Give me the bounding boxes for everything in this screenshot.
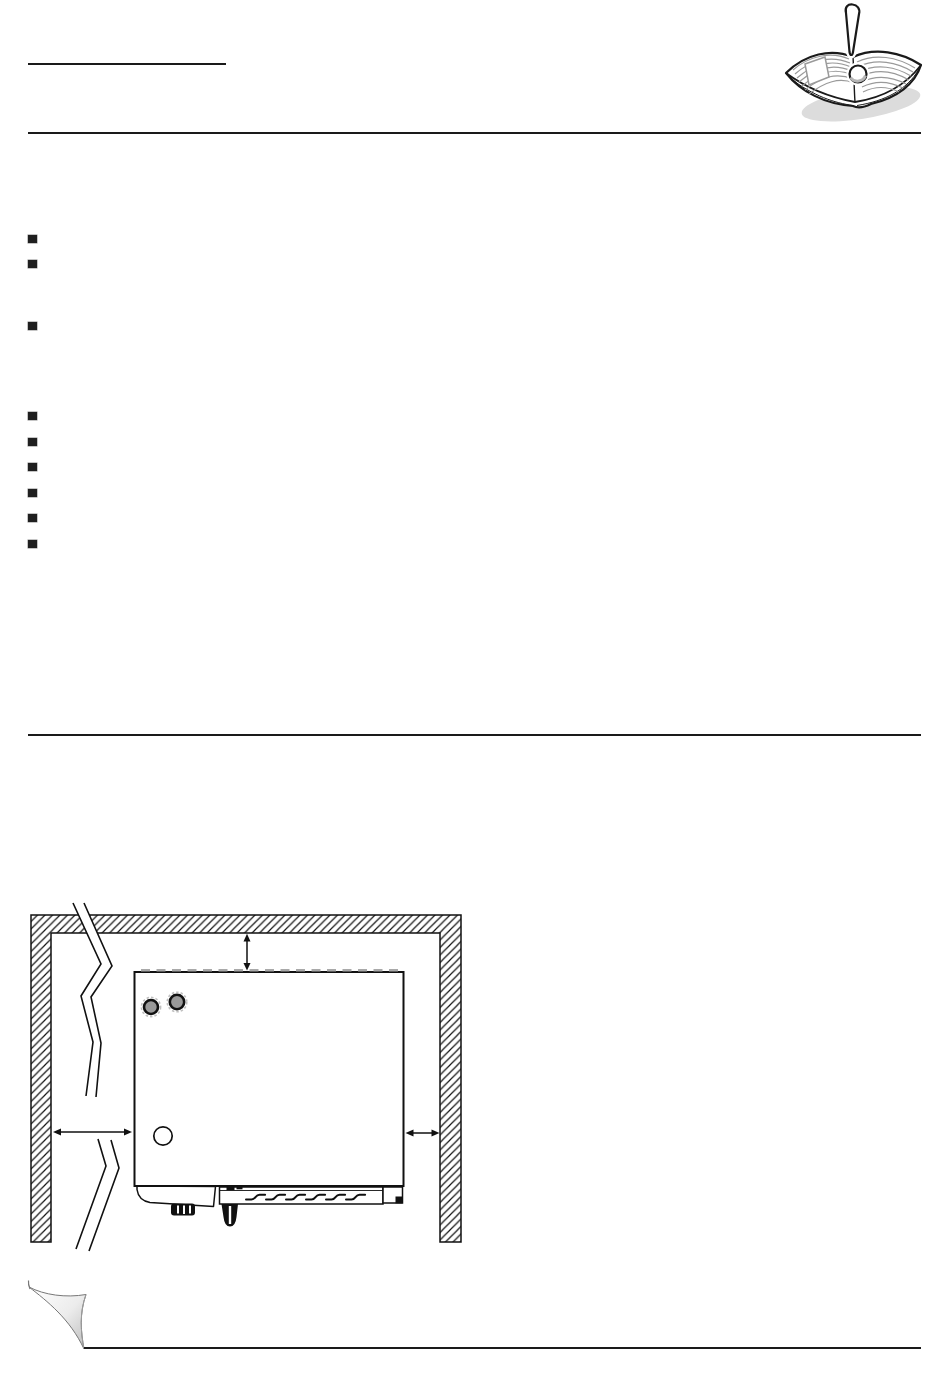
page-curl-icon [24, 1278, 90, 1354]
title-underline [28, 63, 226, 65]
knob-right [170, 995, 184, 1009]
document-page [0, 0, 950, 1378]
installation-diagram [25, 898, 470, 1260]
square-bullet [28, 438, 37, 446]
open-book-exclamation-icon [773, 2, 925, 130]
square-bullet [28, 463, 37, 471]
page-curl [24, 1278, 90, 1354]
base-kick-panel [137, 1186, 216, 1207]
header-rule [28, 132, 921, 134]
top-clearance-arrow [244, 934, 251, 971]
section-rule [28, 734, 921, 736]
square-bullet [28, 540, 37, 548]
footer-rule [84, 1347, 921, 1349]
square-bullet [28, 489, 37, 497]
square-bullet [28, 322, 37, 330]
left-clearance-arrow [53, 1129, 132, 1136]
square-bullet [28, 514, 37, 522]
manual-note-icon [773, 2, 925, 130]
curl-body [29, 1287, 86, 1349]
base-latch-mark [237, 1187, 243, 1190]
square-bullet [28, 260, 37, 268]
square-bullet [28, 235, 37, 243]
right-clearance-arrow [406, 1130, 440, 1137]
front-port-circle [154, 1127, 172, 1145]
appliance-base [137, 1186, 403, 1227]
clearance-diagram-svg [25, 898, 470, 1260]
wall-break-lower-gap [76, 1139, 119, 1251]
knob-left [144, 1000, 158, 1014]
square-bullet [28, 412, 37, 420]
base-corner-block [396, 1197, 403, 1204]
base-latch-mark [227, 1187, 235, 1191]
